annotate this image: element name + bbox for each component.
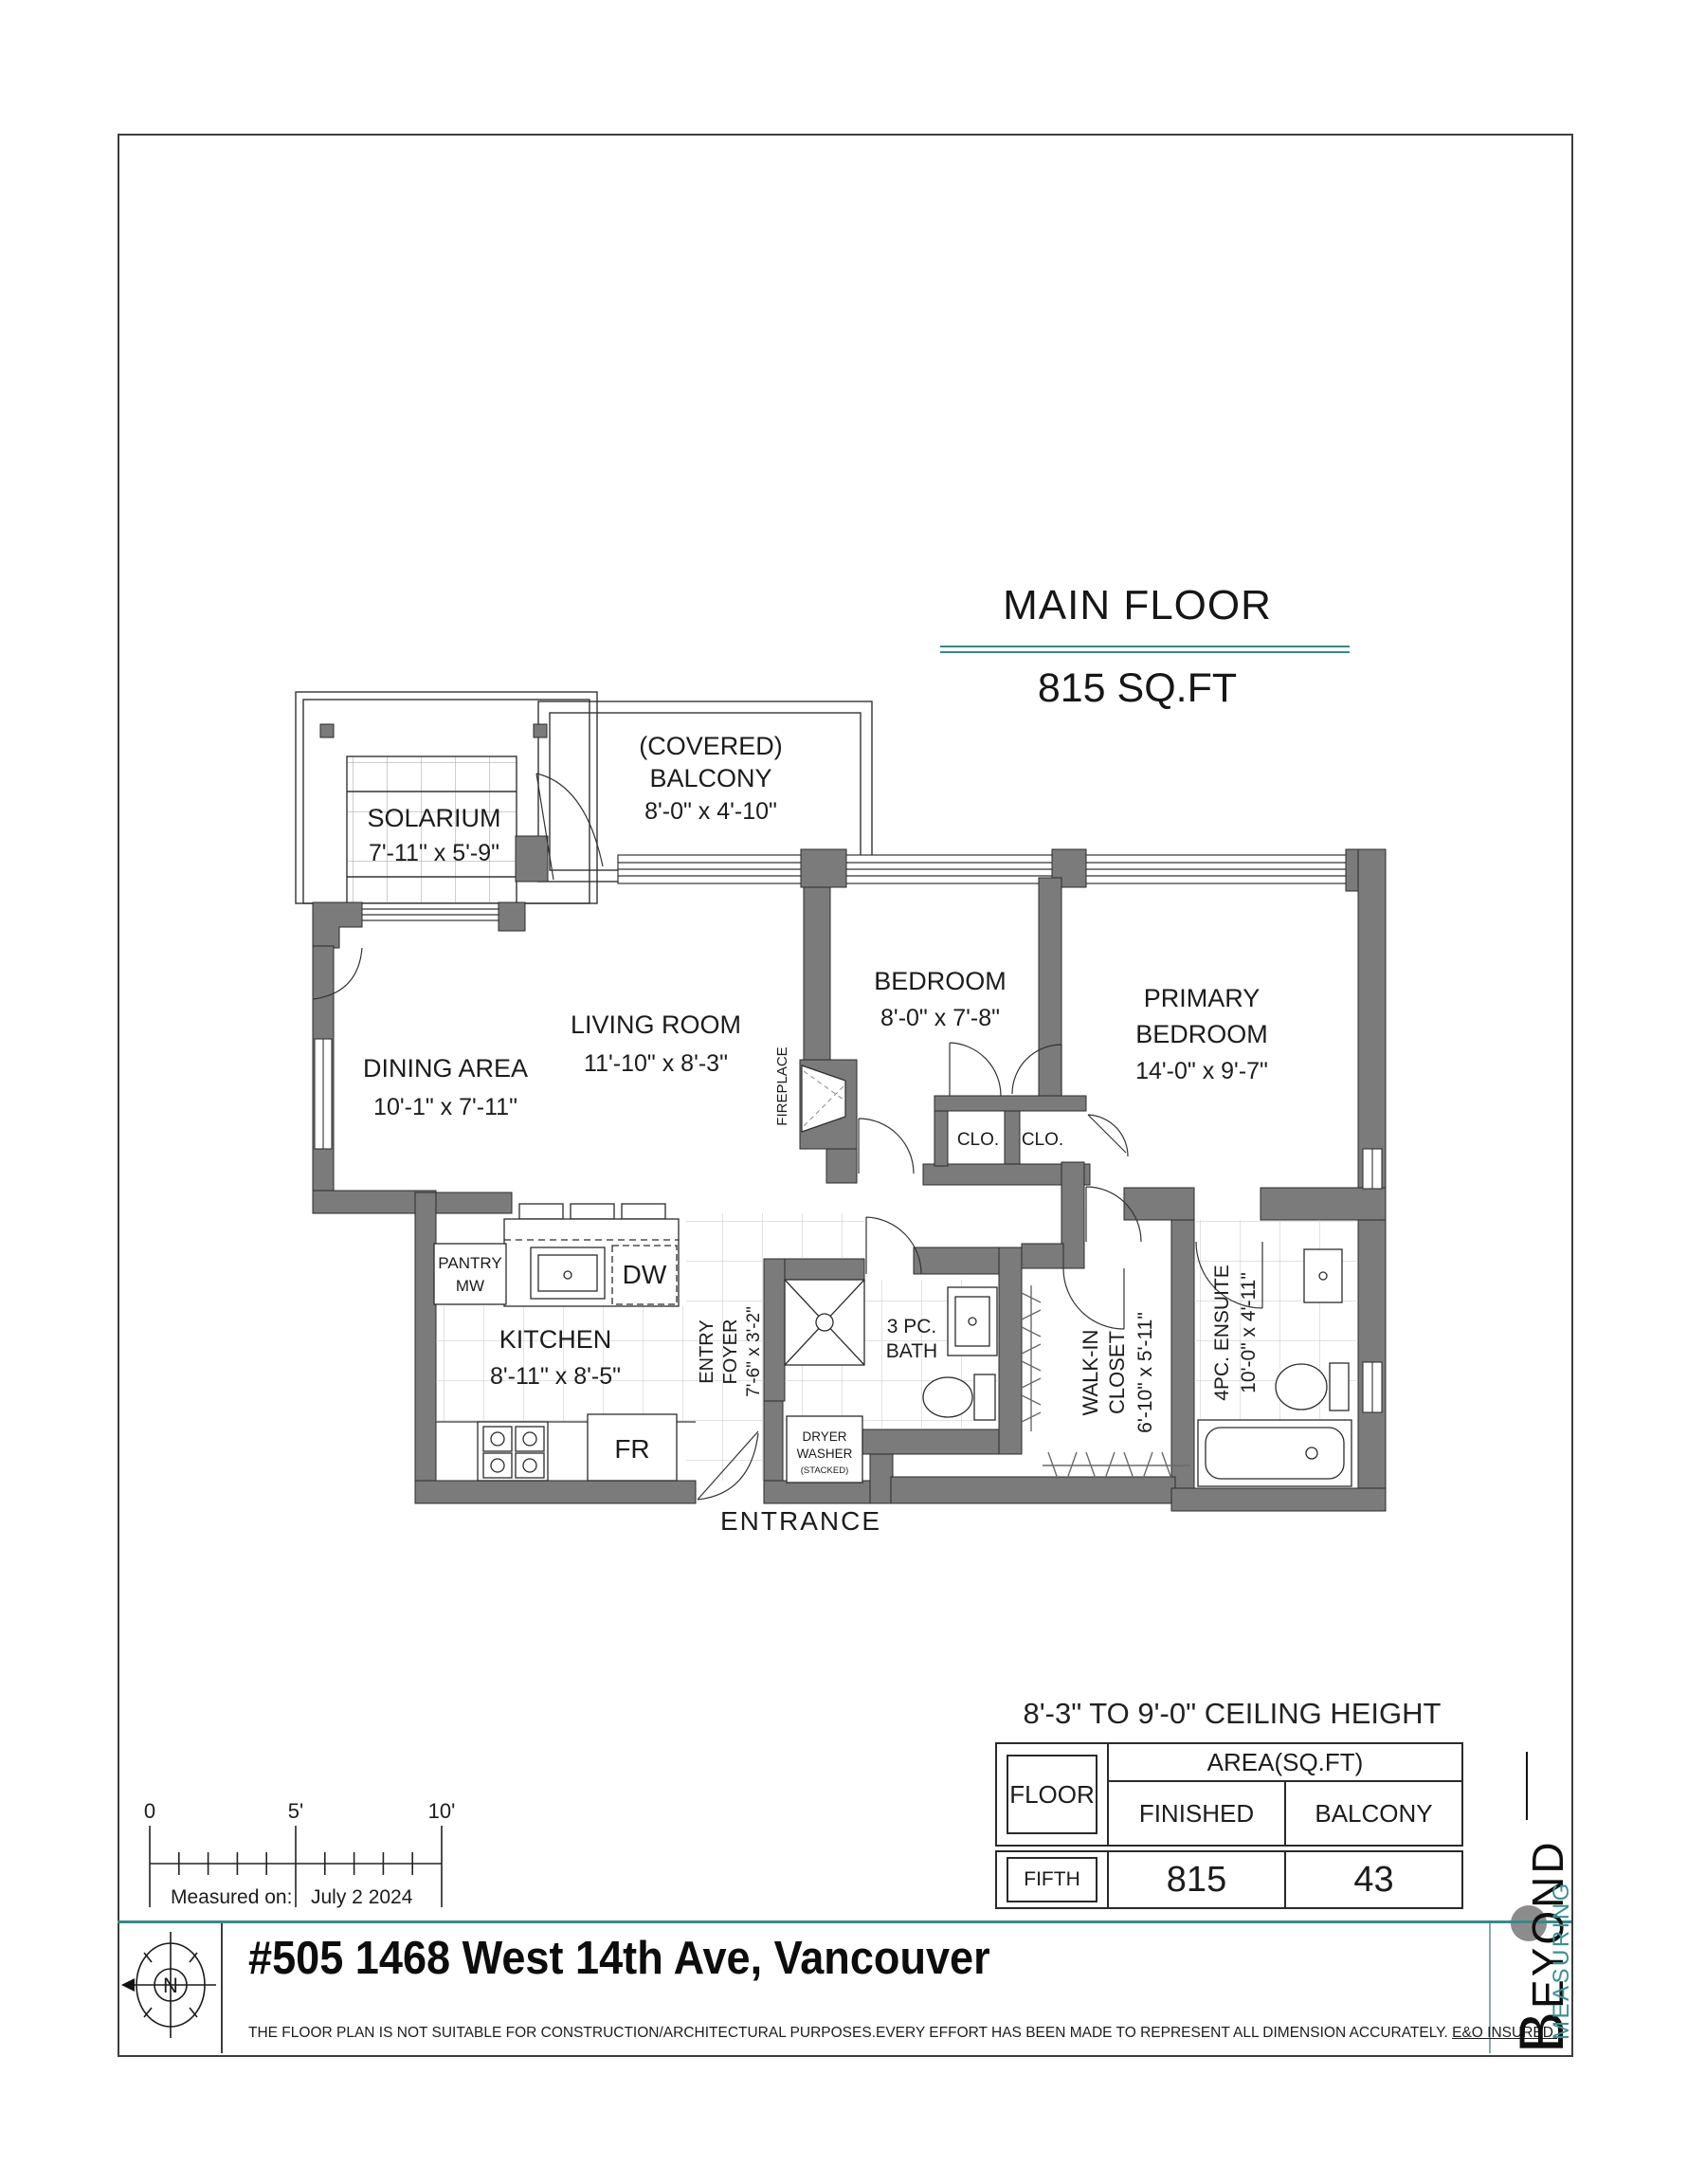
scale-tick-10: 10' <box>428 1799 455 1823</box>
measured-on-label: Measured on: <box>171 1886 292 1908</box>
balcony-label-1: (COVERED) <box>639 732 783 760</box>
measured-on-date: July 2 2024 <box>311 1886 413 1908</box>
scale-tick-5: 5' <box>288 1799 303 1823</box>
primary-label-1: PRIMARY <box>1144 984 1261 1012</box>
solarium-window <box>347 903 517 920</box>
closet2-label: CLO. <box>1022 1130 1063 1150</box>
area-table-row: FIFTH 815 43 <box>995 1850 1463 1909</box>
kitchen-label: KITCHEN <box>499 1325 612 1354</box>
fireplace-label: FIREPLACE <box>774 1046 790 1125</box>
balcony-header: BALCONY <box>1286 1782 1461 1845</box>
entry-label-1: ENTRY <box>697 1319 717 1383</box>
north-arrow <box>121 1978 135 1992</box>
finished-value: 815 <box>1109 1852 1286 1907</box>
pantry-label-1: PANTRY <box>438 1254 501 1272</box>
pantry-label-2: MW <box>456 1277 484 1295</box>
balcony-value: 43 <box>1286 1852 1461 1907</box>
fr-label: FR <box>614 1434 649 1464</box>
bedroom-dims: 8'-0" x 7'-8" <box>880 1005 1000 1031</box>
north-compass: N <box>121 1930 218 2042</box>
floor-value: FIFTH <box>1007 1857 1097 1902</box>
north-letter: N <box>163 1974 178 1997</box>
primary-dims: 14'-0" x 9'-7" <box>1135 1058 1268 1084</box>
primary-label-2: BEDROOM <box>1135 1020 1268 1048</box>
ensuite-dims: 10'-0" x 4'-11" <box>1238 1272 1260 1393</box>
dining-dims: 10'-1" x 7'-11" <box>373 1094 517 1120</box>
address-title: #505 1468 West 14th Ave, Vancouver <box>248 1932 1382 1985</box>
disclaimer-body: THE FLOOR PLAN IS NOT SUITABLE FOR CONST… <box>248 2025 1452 2041</box>
entry-dims: 7'-6" x 3'-2" <box>744 1306 764 1397</box>
title-underline <box>940 646 1350 653</box>
pantry-box <box>434 1244 506 1304</box>
scale-bar: 0 5' 10' Measured on: July 2 2024 <box>133 1799 455 1913</box>
area-header-label: AREA(SQ.FT) <box>1109 1744 1461 1782</box>
walkin-label-1: WALK-IN <box>1079 1330 1102 1416</box>
floorplan-page: MAIN FLOOR 815 SQ.FT <box>0 0 1687 2184</box>
closet1-label: CLO. <box>957 1130 999 1150</box>
area-table-header: FLOOR AREA(SQ.FT) FINISHED BALCONY <box>995 1742 1463 1847</box>
solarium-dims: 7'-11" x 5'-9" <box>369 840 499 866</box>
laundry-label-3: (STACKED) <box>801 1465 849 1476</box>
logo-measuring: MEASURING <box>1549 1771 1573 2040</box>
finished-header: FINISHED <box>1109 1782 1286 1845</box>
ensuite-label: 4PC. ENSUITE <box>1211 1265 1233 1401</box>
walkin-label-2: CLOSET <box>1105 1331 1129 1414</box>
dining-label: DINING AREA <box>363 1054 528 1083</box>
disclaimer-text: THE FLOOR PLAN IS NOT SUITABLE FOR CONST… <box>248 2025 1480 2042</box>
balcony-dims: 8'-0" x 4'-10" <box>644 798 777 825</box>
scale-tick-0: 0 <box>144 1799 155 1823</box>
bath-label-1: 3 PC. <box>887 1316 937 1338</box>
floorplan-drawing: SOLARIUM 7'-11" x 5'-9" (COVERED) BALCON… <box>284 664 1403 1564</box>
dw-label: DW <box>623 1260 667 1289</box>
living-label: LIVING ROOM <box>571 1010 741 1039</box>
floor-header-cell: FLOOR <box>997 1744 1109 1845</box>
kitchen-dims: 8'-11" x 8'-5" <box>490 1363 621 1390</box>
balcony-label-2: BALCONY <box>649 764 771 792</box>
footer-separator <box>118 1920 1571 1923</box>
ensuite-toilet <box>1276 1364 1327 1410</box>
bath-toilet <box>923 1377 972 1417</box>
floor-value-cell: FIFTH <box>997 1852 1109 1907</box>
page-title: MAIN FLOOR <box>910 582 1365 629</box>
compass-cell-border <box>221 1923 223 2053</box>
bedroom-label: BEDROOM <box>874 967 1007 995</box>
ceiling-height-note: 8'-3" TO 9'-0" CEILING HEIGHT <box>976 1697 1488 1731</box>
living-dims: 11'-10" x 8'-3" <box>584 1050 728 1077</box>
entrance-label: ENTRANCE <box>720 1506 881 1536</box>
floor-header-label: FLOOR <box>1007 1755 1097 1834</box>
laundry-label-2: WASHER <box>797 1447 853 1461</box>
bath-label-2: BATH <box>886 1340 937 1362</box>
north-window-band <box>618 855 1358 883</box>
solarium-label: SOLARIUM <box>367 804 500 832</box>
laundry-label-1: DRYER <box>802 1429 846 1444</box>
walkin-dims: 6'-10" x 5'-11" <box>1134 1312 1156 1433</box>
entry-label-2: FOYER <box>720 1319 741 1385</box>
